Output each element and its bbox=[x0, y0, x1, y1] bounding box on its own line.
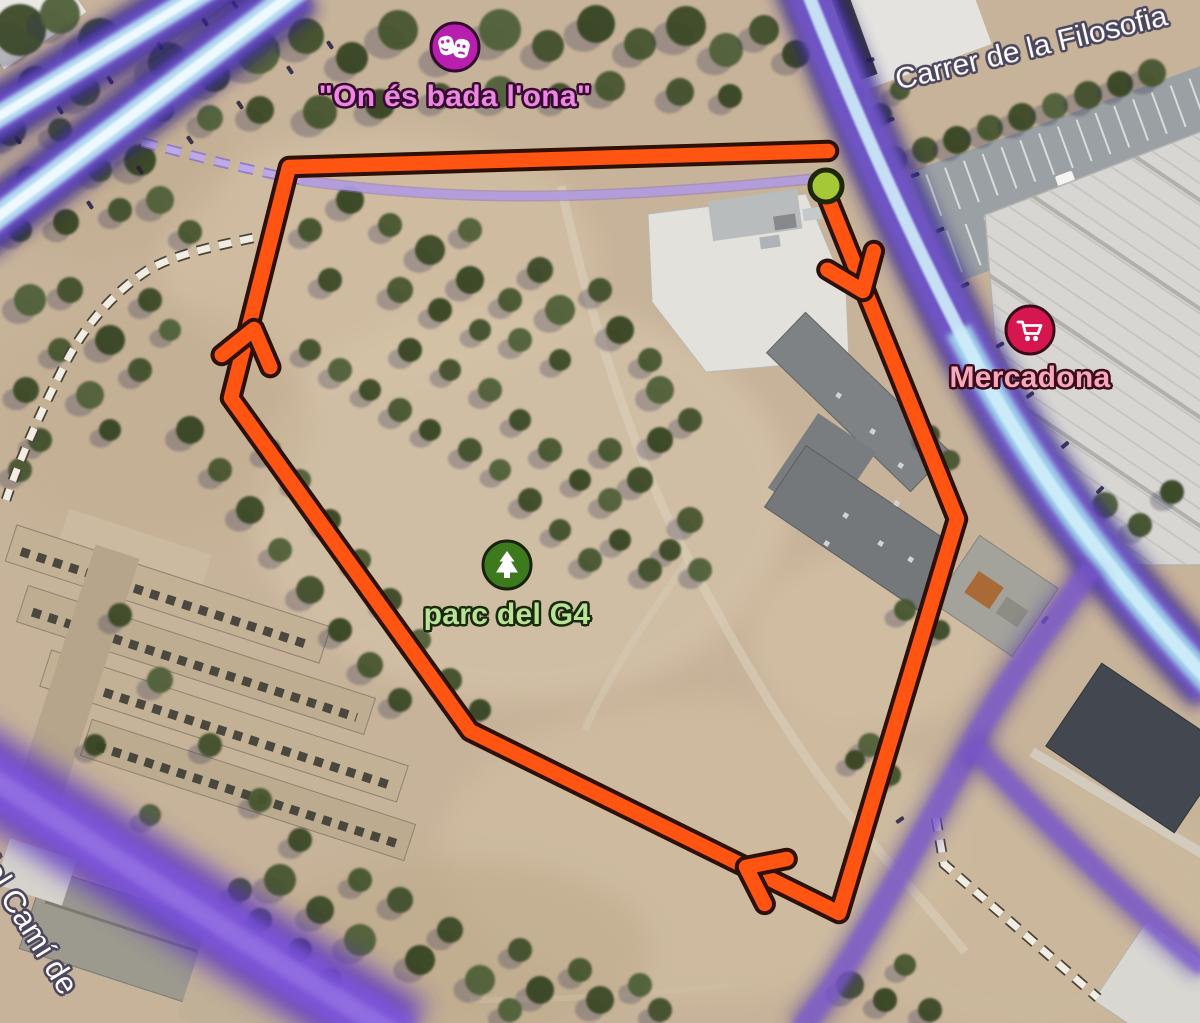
theater-masks-icon[interactable] bbox=[429, 21, 481, 73]
shopping-cart-icon[interactable] bbox=[1004, 304, 1056, 356]
satellite-map bbox=[0, 0, 1200, 1023]
route-start-marker[interactable] bbox=[810, 170, 842, 202]
poi-label-theater: "On és bada l'ona" bbox=[319, 82, 592, 112]
pine-tree-icon[interactable] bbox=[481, 539, 533, 591]
poi-label-park: parc del G4 bbox=[424, 600, 591, 630]
map-canvas[interactable]: "On és bada l'ona" Mercadona parc del G4… bbox=[0, 0, 1200, 1023]
poi-label-mercadona: Mercadona bbox=[949, 363, 1110, 393]
